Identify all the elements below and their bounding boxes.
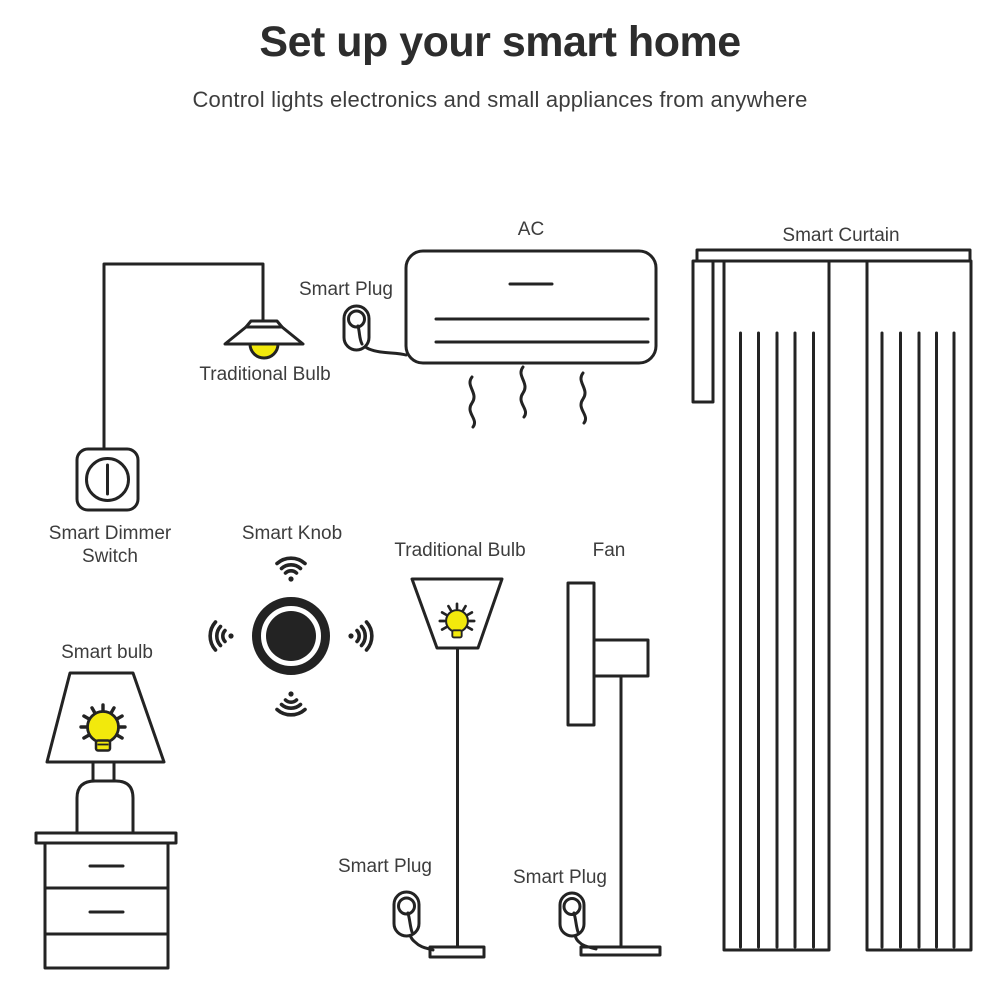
label-smart-bulb: Smart bulb [61,641,153,664]
header: Set up your smart home Control lights el… [0,0,1000,113]
label-smart-plug-fan: Smart Plug [513,866,607,889]
label-traditional-bulb-pendant: Traditional Bulb [199,363,330,386]
label-smart-plug-ac: Smart Plug [299,278,393,301]
label-smart-plug-lamp: Smart Plug [338,855,432,878]
wifi-left-icon [210,622,233,650]
pendant-lamp-icon [104,264,303,449]
page-subtitle: Control lights electronics and small app… [0,87,1000,113]
smart-plug-lamp-icon [394,892,433,950]
wifi-right-icon [348,622,371,650]
table-lamp-icon [47,673,164,833]
label-ac: AC [518,218,544,241]
label-smart-dimmer-line1: Smart Dimmer [49,522,171,545]
smart-plug-fan-icon [560,893,596,949]
ac-unit-icon [406,251,656,427]
label-smart-dimmer-switch: Smart Dimmer Switch [49,522,171,568]
label-fan: Fan [593,539,626,562]
nightstand-icon [36,833,176,968]
diagram-art [0,0,1000,1000]
wifi-bottom-icon [277,691,305,714]
page-title: Set up your smart home [0,18,1000,67]
label-traditional-bulb-floor: Traditional Bulb [394,539,525,562]
smart-plug-ac-icon [344,306,406,355]
label-smart-dimmer-line2: Switch [49,545,171,568]
label-smart-curtain: Smart Curtain [782,224,899,247]
air-flow-icon [470,367,586,427]
smart-dimmer-switch-icon [77,449,138,510]
label-smart-knob: Smart Knob [242,522,342,545]
floor-lamp-icon [412,579,502,957]
smart-knob-icon [210,558,372,715]
wifi-top-icon [277,558,305,581]
smart-home-diagram: Set up your smart home Control lights el… [0,0,1000,1000]
smart-curtain-icon [693,250,971,950]
